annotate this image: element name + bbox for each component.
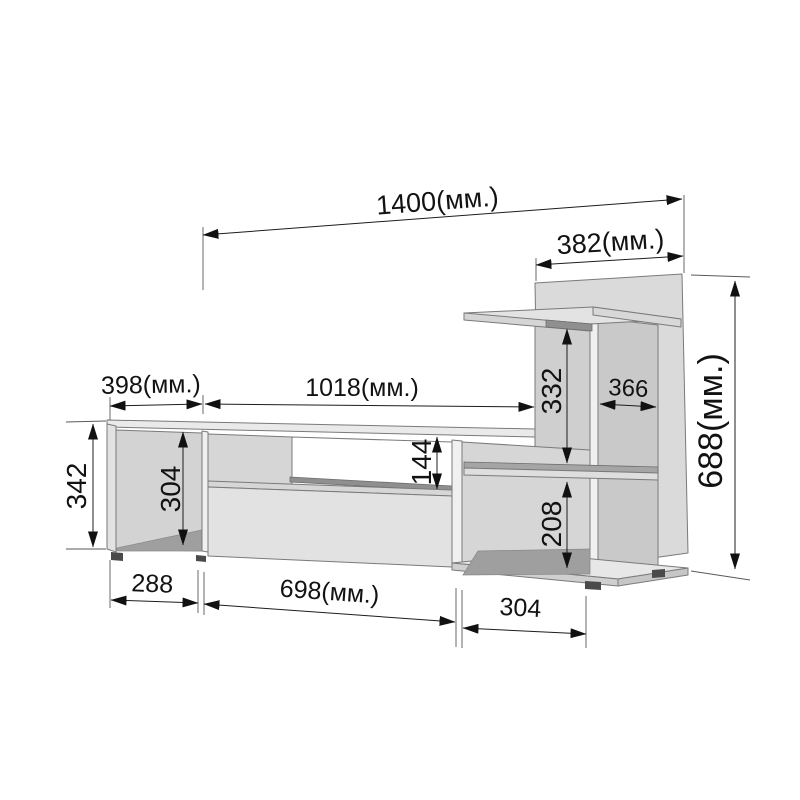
dim-label-398: 398(мм.): [101, 370, 201, 400]
dim-left-height: 342: [61, 421, 106, 549]
foot-tower-right: [652, 569, 665, 578]
dim-label-304-left: 304: [155, 466, 186, 513]
dim-label-332: 332: [536, 368, 567, 415]
drawing-canvas: 1400(мм.) 382(мм.) 688(мм.) 398(мм.) 101…: [0, 0, 800, 800]
dim-bottom-center-width: 698(мм.): [204, 572, 456, 647]
dim-label-304-bottom: 304: [499, 593, 542, 623]
dim-label-688: 688(мм.): [692, 353, 730, 489]
dim-left-top-width: 398(мм.): [101, 370, 203, 420]
dim-bottom-right-width: 304: [462, 590, 586, 648]
dim-tower-width: 382(мм.): [536, 224, 683, 281]
dim-label-342: 342: [61, 463, 92, 510]
dim-label-1400: 1400(мм.): [375, 181, 500, 220]
dimension-line: [205, 404, 534, 407]
witness-line: [691, 275, 750, 277]
stand-divider: [202, 431, 208, 552]
tower-sidewall-face: [598, 318, 658, 578]
dim-label-366: 366: [608, 374, 649, 403]
dim-top-span-width: 1018(мм.): [205, 374, 534, 407]
dim-label-1018: 1018(мм.): [305, 374, 419, 402]
dimension-line: [204, 604, 455, 622]
witness-line: [691, 571, 750, 580]
dim-label-208: 208: [536, 501, 567, 548]
foot-tower-front: [585, 581, 601, 590]
dimension-line: [463, 628, 586, 634]
dimension-line: [111, 600, 198, 603]
dim-label-698: 698(мм.): [279, 575, 380, 610]
dim-label-144: 144: [406, 439, 437, 486]
foot-left-divider: [196, 555, 206, 562]
niche-back-panel: [208, 434, 292, 486]
dim-label-288: 288: [131, 569, 174, 598]
right-compartment-floor-shadow: [463, 549, 590, 575]
dim-bottom-left-width: 288: [110, 560, 198, 613]
furniture-drawing: 1400(мм.) 382(мм.) 688(мм.) 398(мм.) 101…: [0, 0, 800, 800]
tower-sidewall-front-edge: [590, 318, 598, 579]
dim-label-382: 382(мм.): [556, 224, 665, 261]
dim-niche-height: 144: [406, 437, 437, 489]
dimension-line: [110, 404, 202, 406]
drawer-front: [208, 487, 452, 567]
stand-right-divider: [452, 440, 462, 570]
witness-line: [66, 421, 106, 422]
stand-left-side-panel: [107, 424, 116, 552]
dim-tower-height: 688(мм.): [691, 275, 750, 580]
foot-front-left: [111, 552, 123, 561]
